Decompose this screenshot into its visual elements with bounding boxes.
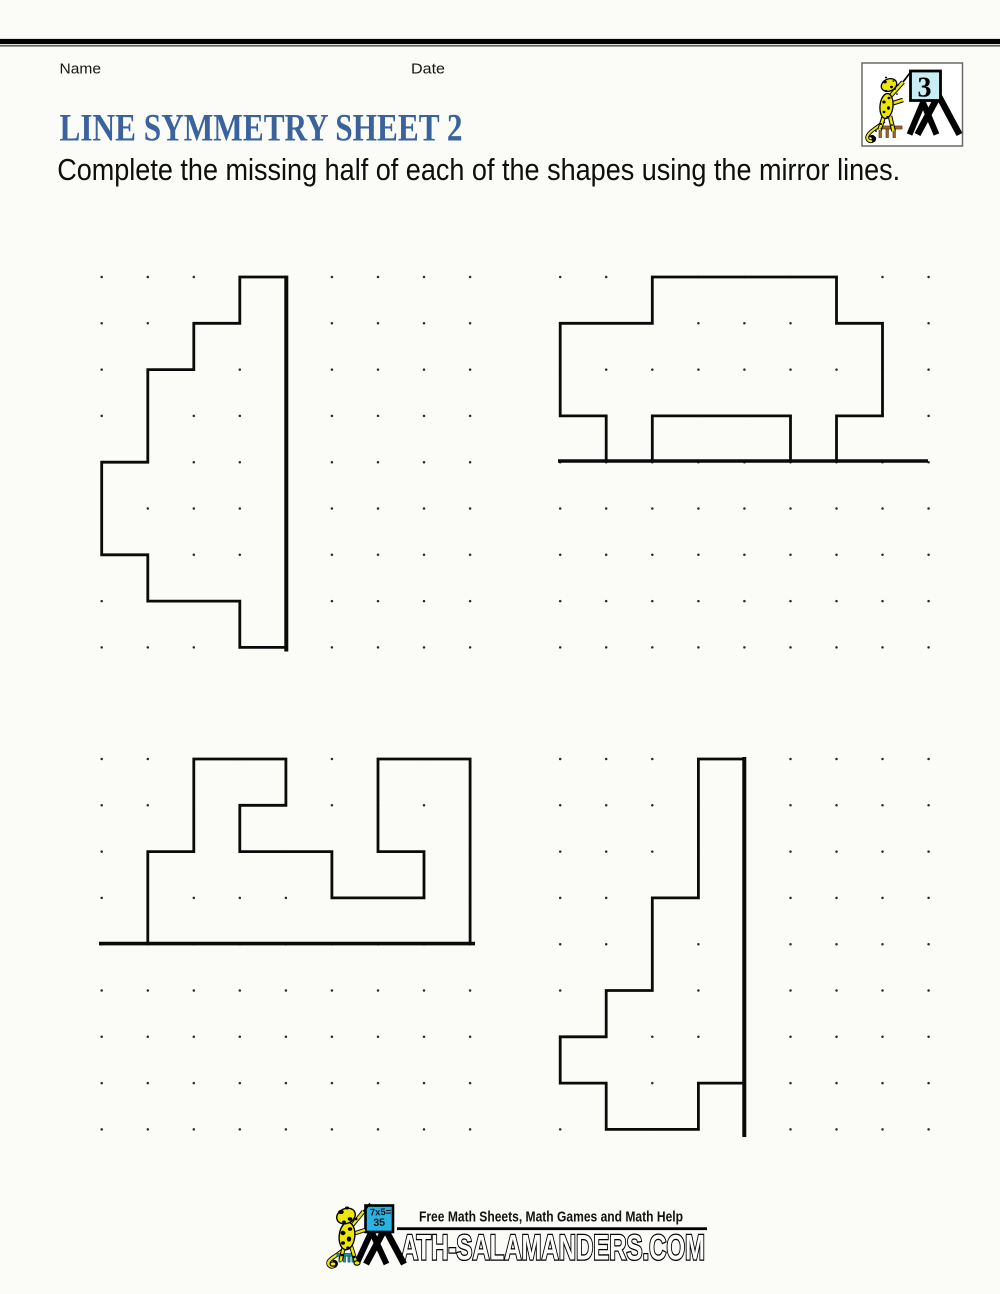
svg-text:3: 3: [918, 73, 932, 104]
svg-text:35: 35: [373, 1217, 385, 1229]
svg-text:ATH-SALAMANDERS.COM: ATH-SALAMANDERS.COM: [401, 1228, 705, 1268]
svg-text:Free Math Sheets, Math Games a: Free Math Sheets, Math Games and Math He…: [419, 1210, 683, 1226]
svg-text:Complete the missing half of e: Complete the missing half of each of the…: [57, 152, 900, 187]
svg-text:LINE SYMMETRY SHEET 2: LINE SYMMETRY SHEET 2: [60, 105, 463, 149]
svg-text:Name: Name: [60, 61, 102, 78]
svg-text:Date: Date: [411, 61, 445, 78]
